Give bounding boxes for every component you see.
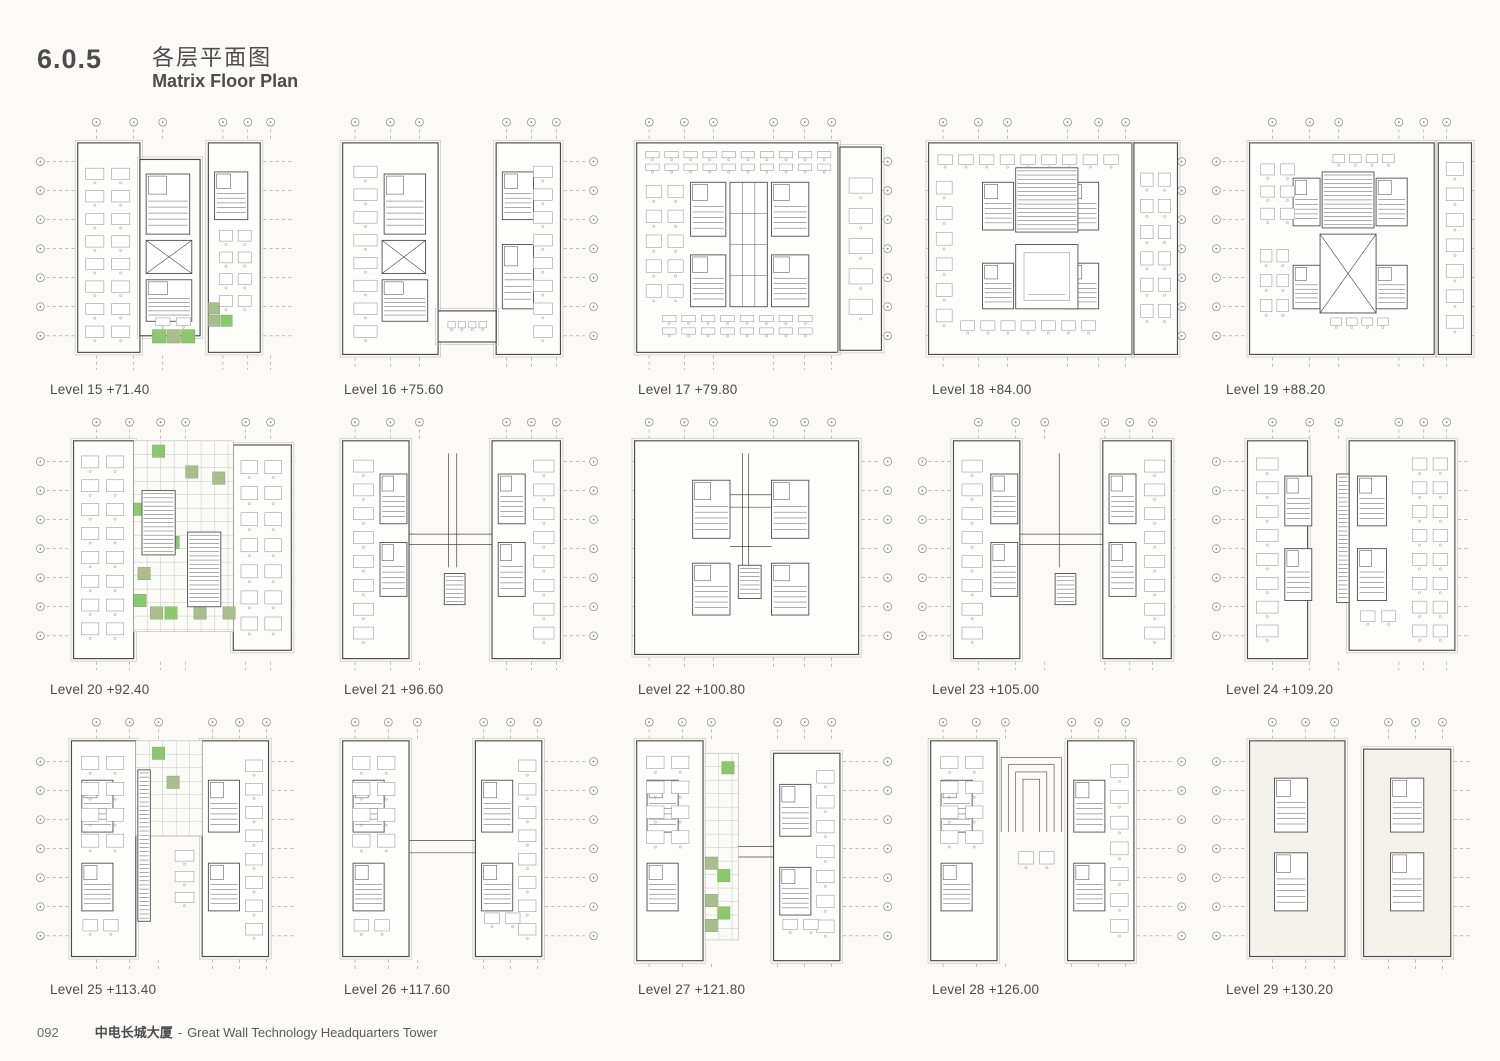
- page-title: 各层平面图 Matrix Floor Plan: [152, 46, 298, 93]
- floor-plan-label: Level 16 +75.60: [324, 382, 604, 397]
- floor-plan-drawing-level-18: [912, 108, 1192, 380]
- floor-plan-cell-level-24: Level 24 +109.20: [1206, 408, 1486, 708]
- floor-plan-cell-level-29: Level 29 +130.20: [1206, 708, 1486, 1008]
- floor-plan-cell-level-20: Level 20 +92.40: [30, 408, 310, 708]
- page-footer: 092 中电长城大厦 - Great Wall Technology Headq…: [37, 1022, 438, 1041]
- page-title-zh: 各层平面图: [152, 46, 298, 70]
- floor-plan-label: Level 18 +84.00: [912, 382, 1192, 397]
- floor-plan-drawing-level-27: [618, 708, 898, 980]
- floor-plan-label: Level 21 +96.60: [324, 682, 604, 697]
- floor-plan-cell-level-19: Level 19 +88.20: [1206, 108, 1486, 408]
- floor-plan-label: Level 19 +88.20: [1206, 382, 1486, 397]
- floor-plan-drawing-level-21: [324, 408, 604, 680]
- floor-plan-cell-level-16: Level 16 +75.60: [324, 108, 604, 408]
- footer-project-name-en: Great Wall Technology Headquarters Tower: [187, 1025, 438, 1040]
- page-title-en: Matrix Floor Plan: [152, 70, 298, 93]
- floor-plan-drawing-level-24: [1206, 408, 1486, 680]
- floor-plans-grid: Level 15 +71.40 Level 16 +75.60 Level 17…: [30, 108, 1486, 1008]
- floor-plan-cell-level-15: Level 15 +71.40: [30, 108, 310, 408]
- floor-plan-cell-level-21: Level 21 +96.60: [324, 408, 604, 708]
- floor-plan-label: Level 27 +121.80: [618, 982, 898, 997]
- floor-plan-drawing-level-16: [324, 108, 604, 380]
- floor-plan-label: Level 28 +126.00: [912, 982, 1192, 997]
- floor-plan-drawing-level-28: [912, 708, 1192, 980]
- floor-plan-label: Level 26 +117.60: [324, 982, 604, 997]
- floor-plan-drawing-level-25: [30, 708, 310, 980]
- floor-plan-drawing-level-20: [30, 408, 310, 680]
- floor-plan-cell-level-18: Level 18 +84.00: [912, 108, 1192, 408]
- floor-plan-label: Level 17 +79.80: [618, 382, 898, 397]
- footer-project-name-zh: 中电长城大厦: [95, 1022, 173, 1041]
- floor-plan-label: Level 29 +130.20: [1206, 982, 1486, 997]
- floor-plan-drawing-level-22: [618, 408, 898, 680]
- floor-plan-cell-level-23: Level 23 +105.00: [912, 408, 1192, 708]
- floor-plan-drawing-level-15: [30, 108, 310, 380]
- floor-plan-cell-level-25: Level 25 +113.40: [30, 708, 310, 1008]
- floor-plan-drawing-level-19: [1206, 108, 1486, 380]
- floor-plan-label: Level 15 +71.40: [30, 382, 310, 397]
- floor-plan-label: Level 24 +109.20: [1206, 682, 1486, 697]
- floor-plan-label: Level 20 +92.40: [30, 682, 310, 697]
- floor-plan-drawing-level-29: [1206, 708, 1486, 980]
- floor-plan-cell-level-28: Level 28 +126.00: [912, 708, 1192, 1008]
- floor-plan-label: Level 22 +100.80: [618, 682, 898, 697]
- floor-plan-cell-level-22: Level 22 +100.80: [618, 408, 898, 708]
- floor-plan-drawing-level-26: [324, 708, 604, 980]
- page-number: 092: [37, 1025, 59, 1040]
- floor-plan-cell-level-26: Level 26 +117.60: [324, 708, 604, 1008]
- floor-plan-cell-level-17: Level 17 +79.80: [618, 108, 898, 408]
- floor-plan-label: Level 23 +105.00: [912, 682, 1192, 697]
- page-header: 6.0.5 各层平面图 Matrix Floor Plan: [37, 46, 298, 93]
- floor-plan-label: Level 25 +113.40: [30, 982, 310, 997]
- floor-plan-drawing-level-23: [912, 408, 1192, 680]
- floor-plan-cell-level-27: Level 27 +121.80: [618, 708, 898, 1008]
- footer-separator: -: [178, 1025, 182, 1040]
- floor-plan-drawing-level-17: [618, 108, 898, 380]
- section-number: 6.0.5: [37, 46, 102, 73]
